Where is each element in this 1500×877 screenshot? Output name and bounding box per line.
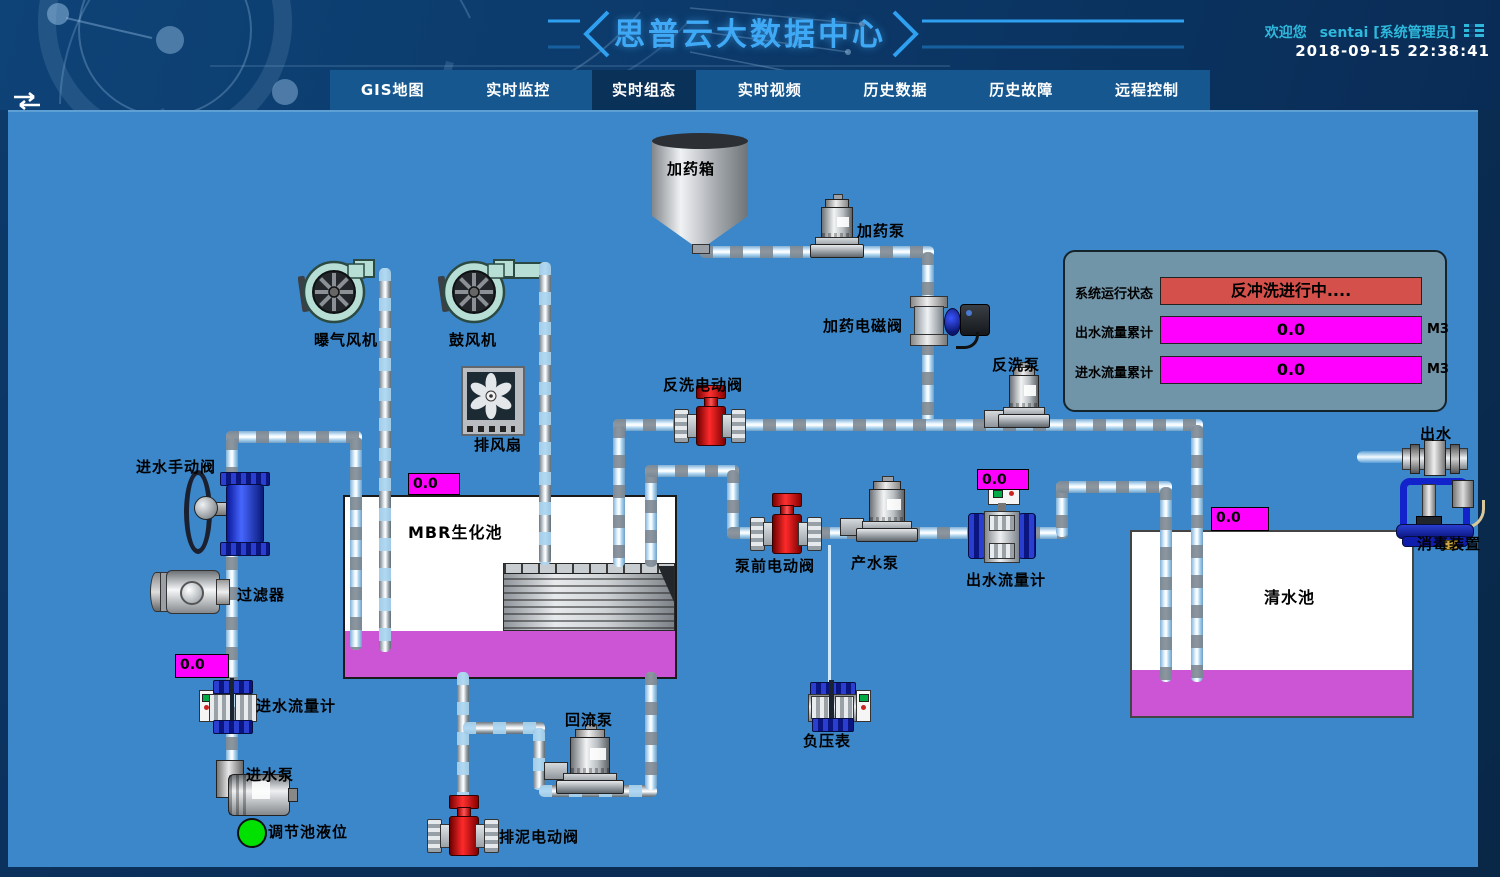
outlet-flow-meter-label: 出水流量计: [966, 569, 1046, 590]
outlet-flow-value: 0.0: [977, 469, 1029, 490]
welcome-prefix: 欢迎您: [1265, 25, 1307, 41]
dosing-tank[interactable]: [652, 132, 748, 250]
exhaust-fan-label: 排风扇: [474, 434, 522, 455]
title-decoration-right: [888, 6, 1188, 62]
pipe-segment: [1191, 425, 1203, 682]
vacuum-gauge-label: 负压表: [803, 730, 851, 751]
pipe-segment: [226, 431, 362, 443]
mbr-tank-label: MBR生化池: [408, 519, 502, 543]
inlet-manual-valve-label: 进水手动阀: [136, 456, 216, 477]
system-status-label: 系统运行状态: [1075, 283, 1153, 302]
system-status-value: 反冲洗进行中....: [1160, 277, 1422, 305]
product-pump[interactable]: [856, 476, 918, 542]
blower-label: 鼓风机: [449, 329, 497, 350]
inlet-pump-label: 进水泵: [246, 764, 294, 785]
prepump-valve[interactable]: [750, 493, 822, 557]
prepump-valve-label: 泵前电动阀: [735, 555, 815, 576]
pipe-segment: [645, 465, 739, 477]
backwash-pump-label: 反洗泵: [992, 354, 1040, 375]
dosing-solenoid-valve[interactable]: [906, 296, 992, 348]
pipe-segment: [645, 672, 657, 790]
return-pump-label: 回流泵: [565, 709, 613, 730]
sludge-valve[interactable]: [427, 795, 499, 859]
pipe-segment: [350, 437, 362, 650]
dosing-tank-label: 加药箱: [667, 158, 715, 179]
clean-water-tank-label: 清水池: [1264, 584, 1315, 608]
inlet-flow-value: 0.0: [175, 654, 229, 678]
inlet-total-unit: M3: [1427, 362, 1449, 377]
tab-realtime-scada[interactable]: 实时组态: [592, 70, 696, 110]
pipe-segment: [613, 425, 625, 567]
aeration-blower[interactable]: [298, 254, 378, 326]
mbr-level-value: 0.0: [408, 473, 460, 495]
pipe-segment: [1056, 481, 1172, 493]
list-icon[interactable]: [1464, 24, 1484, 41]
pipe-segment: [645, 470, 657, 567]
username: sentai [系统管理员]: [1320, 25, 1456, 41]
regulating-tank-level-indicator: [237, 818, 267, 848]
nav-bar: GIS地图 实时监控 实时组态 实时视频 历史数据 历史故障 远程控制: [330, 70, 1210, 110]
scada-page: 思普云大数据中心 欢迎您 sentai [系统管理员] 2018-09-15 2…: [0, 0, 1500, 877]
clean-tank-value: 0.0: [1211, 507, 1269, 531]
outlet-label: 出水: [1420, 423, 1452, 444]
welcome-text: 欢迎您 sentai [系统管理员]: [1150, 22, 1456, 42]
pipe-segment: [379, 268, 391, 652]
clean-water-tank-liquid: [1132, 670, 1412, 716]
sensor-line: [828, 545, 831, 683]
tab-realtime-monitor[interactable]: 实时监控: [466, 70, 570, 110]
page-title: 思普云大数据中心: [560, 12, 940, 58]
inlet-flow-meter-label: 进水流量计: [256, 695, 336, 716]
inlet-total-value: 0.0: [1160, 356, 1422, 384]
return-pump[interactable]: [556, 724, 624, 794]
exhaust-fan[interactable]: [461, 366, 525, 436]
vacuum-gauge[interactable]: [798, 678, 870, 736]
pipe-segment: [1160, 487, 1172, 682]
inlet-total-label: 进水流量累计: [1075, 362, 1153, 381]
clean-water-tank: [1130, 530, 1414, 718]
tab-realtime-video[interactable]: 实时视频: [718, 70, 822, 110]
outlet-total-unit: M3: [1427, 322, 1449, 337]
disinfection-device-label: 消毒装置: [1417, 533, 1481, 554]
tab-remote-control[interactable]: 远程控制: [1095, 70, 1199, 110]
dosing-solenoid-valve-label: 加药电磁阀: [823, 315, 903, 336]
datetime: 2018-09-15 22:38:41: [1290, 42, 1490, 62]
pipe-segment: [533, 728, 545, 790]
filter[interactable]: [150, 565, 230, 615]
regulating-tank-level-label: 调节池液位: [268, 821, 348, 842]
tab-history-data[interactable]: 历史数据: [844, 70, 948, 110]
backwash-valve-label: 反洗电动阀: [663, 374, 743, 395]
outlet-total-label: 出水流量累计: [1075, 322, 1153, 341]
membrane-module: [503, 563, 675, 631]
dosing-pump-label: 加药泵: [857, 220, 905, 241]
tab-gis-map[interactable]: GIS地图: [341, 70, 445, 110]
dosing-pump[interactable]: [810, 194, 864, 258]
filter-label: 过滤器: [237, 584, 285, 605]
fan-blades-icon: [467, 372, 515, 420]
pipe-segment: [539, 262, 551, 565]
product-pump-label: 产水泵: [851, 552, 899, 573]
outlet-flow-meter[interactable]: [966, 485, 1036, 565]
swap-arrows-icon[interactable]: [12, 92, 42, 110]
outlet-pipe: [1357, 451, 1405, 463]
tab-history-fault[interactable]: 历史故障: [969, 70, 1073, 110]
blower[interactable]: [438, 254, 518, 326]
sludge-valve-label: 排泥电动阀: [499, 826, 579, 847]
status-panel: 系统运行状态 反冲洗进行中.... 出水流量累计 0.0 M3 进水流量累计 0…: [1063, 250, 1447, 412]
inlet-flow-meter[interactable]: [199, 678, 263, 734]
outlet-total-value: 0.0: [1160, 316, 1422, 344]
aeration-blower-label: 曝气风机: [314, 329, 378, 350]
pipe-segment: [727, 470, 739, 533]
mbr-tank-liquid: [345, 631, 675, 677]
